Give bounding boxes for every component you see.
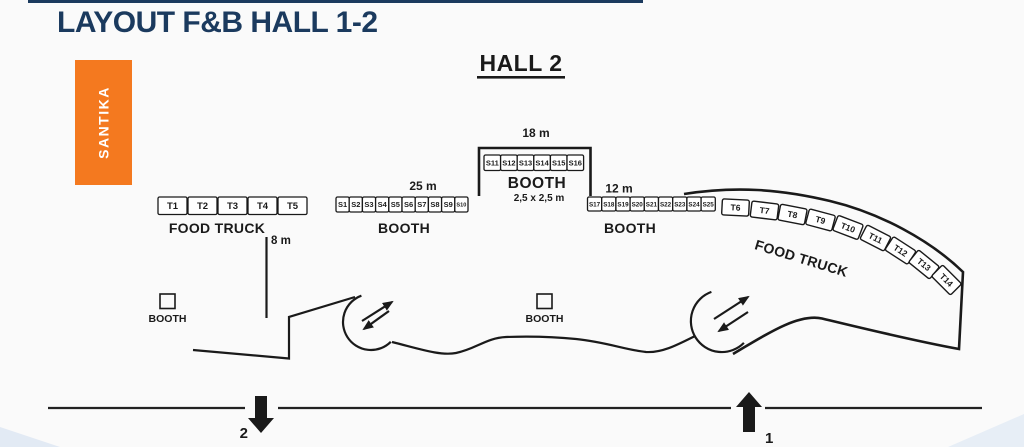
booth-cell-label-S8: S8 (430, 200, 439, 209)
food-truck-left-strip: T1T2T3T4T5 (158, 197, 307, 215)
exit-arrow-down-icon (248, 396, 274, 433)
booth-cell-label-S9: S9 (444, 200, 453, 209)
food-truck-cell-T8: T8 (778, 204, 808, 225)
booth-cell-label-S21: S21 (646, 201, 658, 208)
food-truck-cell-T10: T10 (833, 215, 864, 240)
food-truck-cell-label-T7: T7 (759, 205, 770, 216)
standalone-booth-left: BOOTH (149, 294, 187, 325)
booth-cell-label-T5: T5 (287, 201, 299, 212)
standalone-booth-center: BOOTH (526, 294, 564, 325)
booth-right-strip: S17S18S19S20S21S22S23S24S25 (588, 197, 716, 211)
booth-cell-label-S25: S25 (703, 201, 715, 208)
booth-cell-label-S12: S12 (502, 158, 515, 167)
food-truck-cell-T7: T7 (750, 201, 779, 220)
food-truck-left-caption: FOOD TRUCK (169, 220, 265, 236)
booth-left-strip: S1S2S3S4S5S6S7S8S9S10 (336, 197, 468, 212)
standalone-booth-center-label: BOOTH (526, 313, 564, 325)
booth-cell-label-S24: S24 (688, 201, 700, 208)
booth-center-dimension: 18 m (522, 126, 549, 140)
booth-cell-label-S20: S20 (632, 201, 644, 208)
standalone-booth-left-box (160, 294, 175, 309)
standalone-booth-left-label: BOOTH (149, 313, 187, 325)
booth-right-dimension: 12 m (605, 182, 632, 196)
turnstile-right-arc (691, 292, 744, 352)
walkway-middle (392, 336, 695, 354)
booth-cell-label-T3: T3 (227, 201, 238, 212)
booth-cell-label-S4: S4 (378, 200, 388, 209)
flow-arrow-right-in (719, 312, 748, 331)
booth-cell-label-S1: S1 (338, 200, 347, 209)
booth-cell-label-T2: T2 (197, 201, 208, 212)
santika-banner-label: SANTIKA (96, 86, 112, 159)
booth-cell-label-S13: S13 (519, 158, 532, 167)
booth-cell-label-T4: T4 (257, 201, 269, 212)
hall-title: HALL 2 (479, 50, 562, 76)
corner-decoration-left (0, 427, 60, 447)
floorplan-diagram: SANTIKA HALL 2 T1T2T3T4T5 FOOD TRUCK 8 m… (0, 0, 1024, 447)
gate-1-label: 1 (765, 430, 773, 447)
booth-cell-label-S19: S19 (617, 201, 629, 208)
booth-cell-label-S16: S16 (569, 158, 582, 167)
booth-right-caption: BOOTH (604, 220, 656, 236)
booth-cell-label-S23: S23 (674, 201, 686, 208)
aisle-dimension-label: 8 m (271, 235, 291, 247)
booth-left-dimension: 25 m (409, 179, 436, 193)
hall-title-underline (477, 76, 565, 79)
booth-cell-label-S17: S17 (589, 201, 601, 208)
gate-2-label: 2 (240, 425, 248, 442)
entry-arrow-up-icon (736, 392, 762, 432)
food-truck-cell-label-T6: T6 (730, 202, 741, 213)
booth-cell-label-S14: S14 (535, 158, 549, 167)
food-truck-cell-T6: T6 (722, 199, 750, 216)
booth-cell-label-S2: S2 (351, 200, 360, 209)
booth-cell-label-S18: S18 (603, 201, 615, 208)
booth-cell-label-S6: S6 (404, 200, 413, 209)
flow-arrow-left-in (364, 311, 389, 329)
walkway-left (193, 297, 355, 359)
booth-cell-label-S3: S3 (364, 200, 373, 209)
booth-cell-label-T1: T1 (167, 201, 179, 212)
booth-cell-label-S11: S11 (486, 158, 499, 167)
food-truck-cell-T9: T9 (805, 209, 835, 231)
booth-cell-label-S10: S10 (456, 203, 466, 209)
booth-cell-label-S22: S22 (660, 201, 672, 208)
booth-left-caption: BOOTH (378, 220, 430, 236)
standalone-booth-center-box (537, 294, 552, 309)
corner-decoration-right (948, 414, 1024, 447)
booth-cell-label-S15: S15 (552, 158, 565, 167)
booth-cell-label-S7: S7 (417, 200, 426, 209)
booth-center-caption: BOOTH (508, 175, 566, 192)
booth-cell-label-S5: S5 (391, 200, 400, 209)
booth-center-unit-size: 2,5 x 2,5 m (514, 193, 565, 204)
food-truck-right-caption: FOOD TRUCK (753, 236, 850, 279)
booth-center-strip: S11S12S13S14S15S16 (484, 155, 584, 171)
turnstile-left-arc (343, 296, 391, 350)
santika-banner: SANTIKA (75, 60, 132, 185)
